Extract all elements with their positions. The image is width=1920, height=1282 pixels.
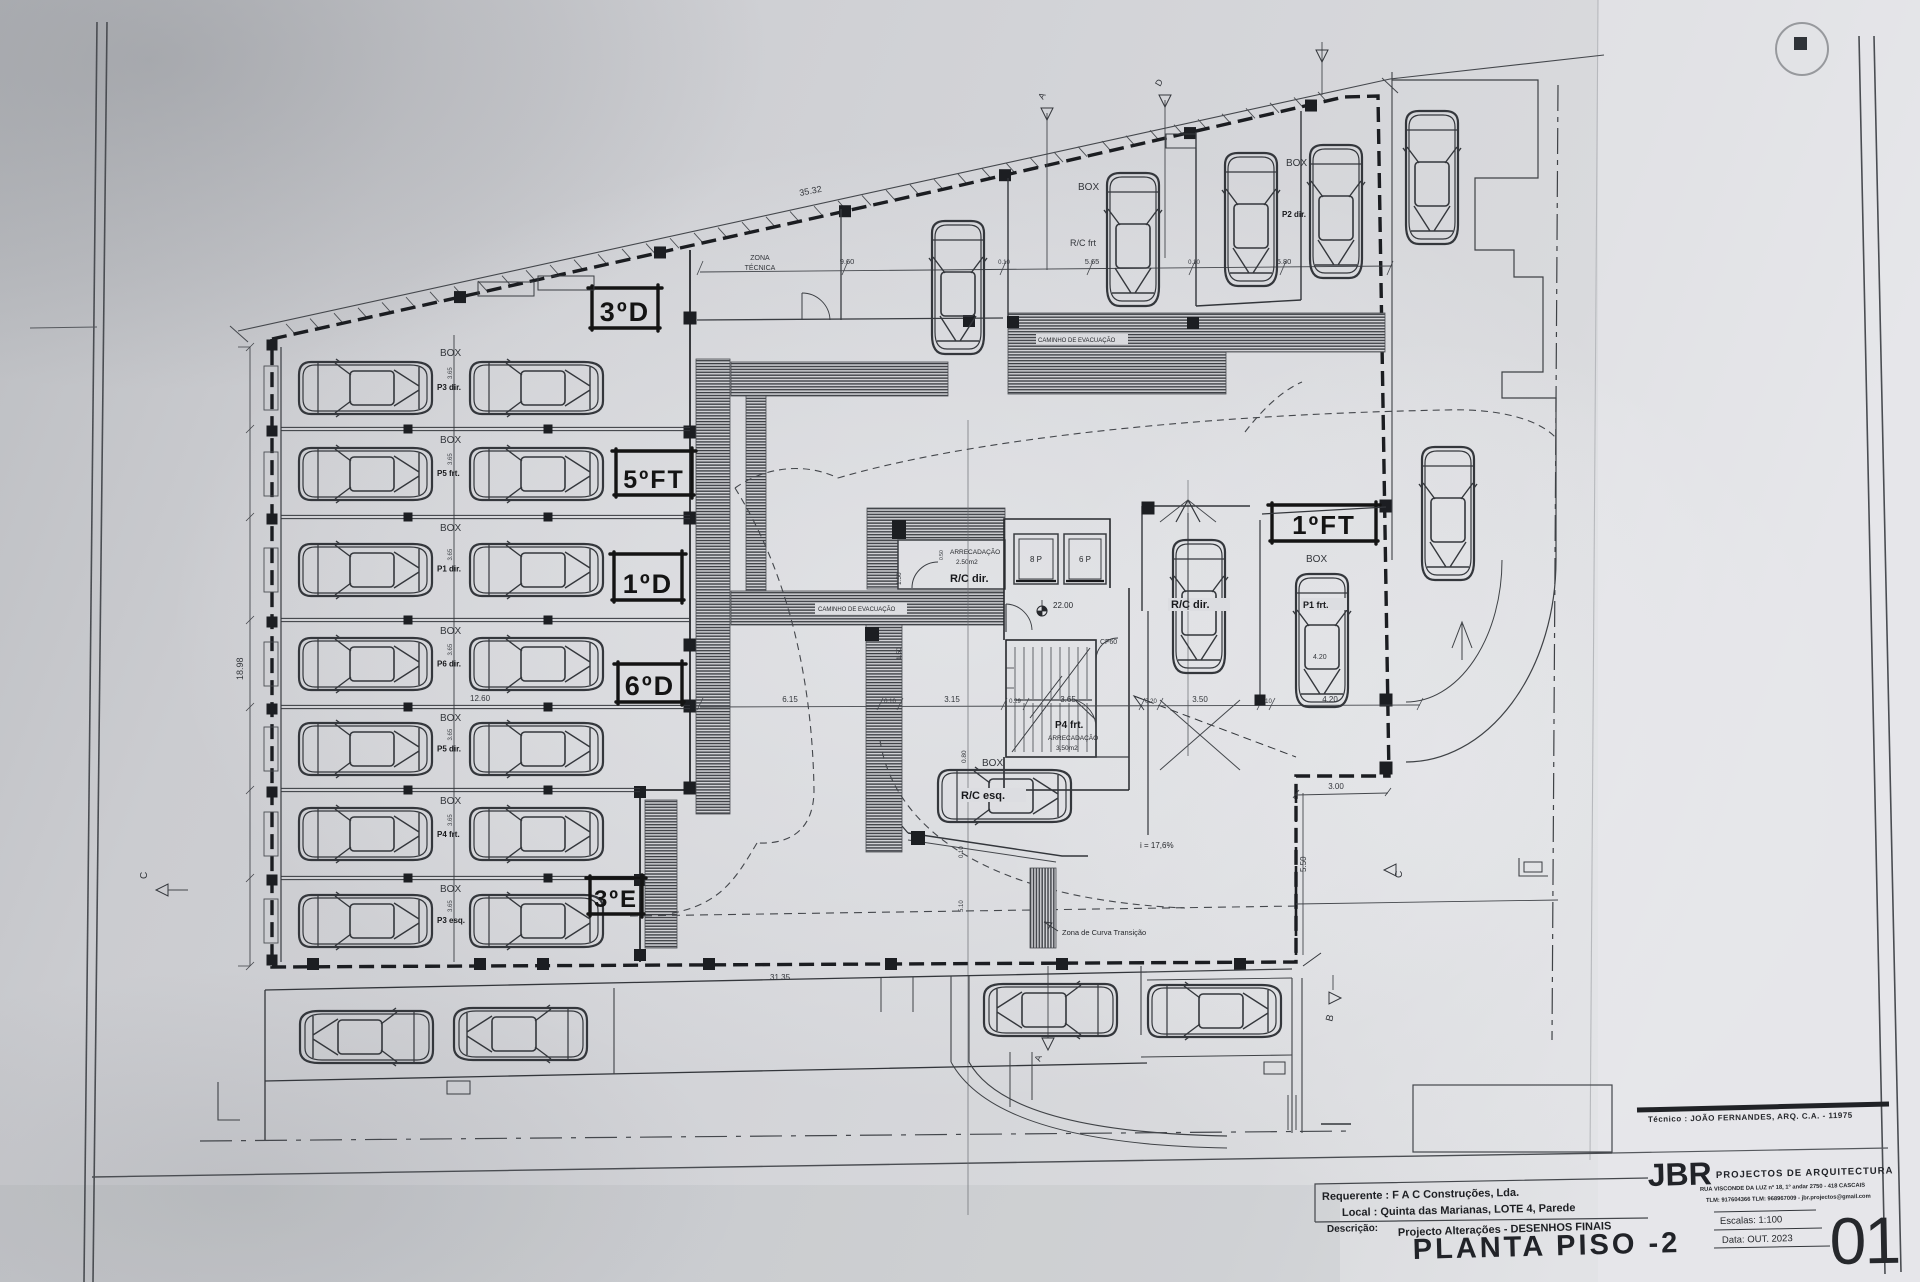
svg-text:5ºFT: 5ºFT — [623, 466, 685, 494]
svg-text:BOX: BOX — [440, 523, 461, 534]
svg-text:P2 dir.: P2 dir. — [1282, 210, 1306, 219]
svg-text:5.10: 5.10 — [959, 900, 965, 912]
svg-text:R/C dir.: R/C dir. — [950, 573, 989, 585]
svg-text:3.65: 3.65 — [448, 814, 454, 826]
svg-text:3.50: 3.50 — [1192, 695, 1208, 704]
svg-text:01: 01 — [1829, 1203, 1900, 1278]
svg-text:P4 frt.: P4 frt. — [437, 830, 460, 839]
svg-text:3ºE: 3ºE — [594, 886, 638, 913]
svg-text:4.20: 4.20 — [1313, 654, 1327, 661]
svg-text:BOX: BOX — [1078, 182, 1099, 193]
svg-text:3.65: 3.65 — [448, 900, 454, 912]
svg-text:1.50: 1.50 — [896, 572, 903, 585]
svg-text:Data: OUT. 2023: Data: OUT. 2023 — [1722, 1233, 1793, 1246]
svg-text:3.00: 3.00 — [1328, 782, 1344, 791]
svg-text:3.65: 3.65 — [1060, 695, 1076, 704]
svg-text:P6 dir.: P6 dir. — [437, 660, 461, 669]
svg-text:5.65: 5.65 — [1085, 257, 1100, 266]
svg-text:3.15: 3.15 — [944, 695, 960, 704]
svg-text:ZONA: ZONA — [750, 255, 770, 262]
svg-text:0.29: 0.29 — [1009, 699, 1021, 705]
svg-text:P3 dir.: P3 dir. — [437, 383, 461, 392]
svg-text:3.65: 3.65 — [448, 728, 454, 740]
svg-text:BOX: BOX — [440, 435, 461, 446]
svg-text:P4 frt.: P4 frt. — [1055, 720, 1084, 731]
svg-text:R/C esq.: R/C esq. — [961, 790, 1005, 802]
svg-text:12.60: 12.60 — [470, 694, 491, 703]
svg-text:P3 esq.: P3 esq. — [437, 916, 465, 925]
svg-text:5.50: 5.50 — [1299, 856, 1308, 872]
svg-text:C: C — [139, 872, 150, 879]
svg-text:BOX: BOX — [982, 758, 1003, 769]
svg-text:18.98: 18.98 — [235, 657, 245, 680]
svg-text:3ºD: 3ºD — [600, 297, 650, 327]
svg-text:3.65: 3.65 — [448, 453, 454, 465]
svg-text:1.50: 1.50 — [896, 647, 903, 660]
svg-text:8 P: 8 P — [1030, 555, 1042, 564]
svg-text:3.50m2: 3.50m2 — [1056, 745, 1078, 752]
svg-text:R/C dir.: R/C dir. — [1171, 599, 1210, 611]
svg-text:BOX: BOX — [1306, 554, 1327, 565]
svg-text:BOX: BOX — [440, 348, 461, 359]
svg-text:5.80: 5.80 — [1277, 257, 1292, 266]
svg-text:0.80: 0.80 — [961, 750, 968, 763]
svg-text:2.50m2: 2.50m2 — [956, 559, 978, 566]
svg-text:BOX: BOX — [1286, 158, 1307, 169]
svg-text:P5 dir.: P5 dir. — [437, 745, 461, 754]
svg-text:0.10: 0.10 — [959, 846, 965, 858]
svg-text:TÉCNICA: TÉCNICA — [745, 263, 776, 272]
svg-text:3.65: 3.65 — [448, 548, 454, 560]
svg-text:22.00: 22.00 — [1053, 601, 1074, 610]
svg-text:BOX: BOX — [440, 884, 461, 895]
svg-text:4.20: 4.20 — [1322, 695, 1338, 704]
svg-text:6.15: 6.15 — [782, 695, 798, 704]
svg-text:CAMINHO DE EVACUAÇÃO: CAMINHO DE EVACUAÇÃO — [1038, 337, 1116, 344]
svg-text:CAMINHO DE EVACUAÇÃO: CAMINHO DE EVACUAÇÃO — [818, 606, 896, 613]
svg-text:P1 frt.: P1 frt. — [1303, 600, 1329, 610]
svg-text:P1 dir.: P1 dir. — [437, 565, 461, 574]
svg-text:Zona de Curva Transição: Zona de Curva Transição — [1062, 928, 1146, 937]
svg-text:BOX: BOX — [440, 796, 461, 807]
svg-text:C: C — [1394, 871, 1405, 878]
svg-text:3.65: 3.65 — [448, 367, 454, 379]
svg-text:3.65: 3.65 — [448, 643, 454, 655]
svg-text:P5 frt.: P5 frt. — [437, 469, 460, 478]
svg-text:ARRECADAÇÃO: ARRECADAÇÃO — [950, 547, 1000, 556]
svg-text:Descrição:: Descrição: — [1327, 1223, 1378, 1235]
svg-text:9.60: 9.60 — [840, 257, 855, 266]
svg-text:31.35: 31.35 — [770, 973, 791, 982]
svg-text:1ºD: 1ºD — [623, 569, 673, 599]
svg-text:Escalas: 1:100: Escalas: 1:100 — [1720, 1214, 1783, 1227]
svg-text:6 P: 6 P — [1079, 555, 1091, 564]
svg-text:R/C frt: R/C frt — [1070, 238, 1096, 248]
svg-text:i = 17,6%: i = 17,6% — [1140, 841, 1174, 850]
svg-text:ARRECADAÇÃO: ARRECADAÇÃO — [1048, 733, 1098, 742]
svg-text:0.10: 0.10 — [884, 699, 896, 705]
svg-text:BOX: BOX — [440, 713, 461, 724]
svg-text:6ºD: 6ºD — [625, 671, 675, 701]
svg-text:0.50: 0.50 — [939, 550, 945, 560]
svg-text:0.10: 0.10 — [1188, 260, 1200, 266]
svg-text:1ºFT: 1ºFT — [1292, 510, 1356, 540]
svg-text:BOX: BOX — [440, 626, 461, 637]
